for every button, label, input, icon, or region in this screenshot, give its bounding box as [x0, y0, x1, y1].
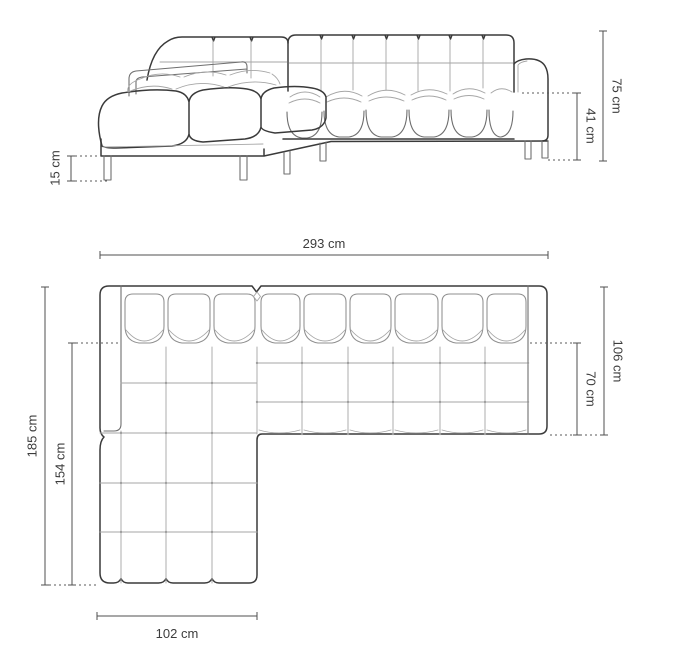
chaise-length-label: 154 cm — [52, 443, 67, 486]
total-width-label: 293 cm — [303, 236, 346, 251]
chaise-total-depth-label: 185 cm — [24, 415, 39, 458]
leg-height-line — [67, 156, 75, 181]
total-height-label: 75 cm — [610, 78, 625, 113]
dim-seat-height: 41 cm — [522, 93, 599, 160]
dim-chaise-total-depth: 185 cm — [24, 287, 49, 585]
chaise-width-label: 102 cm — [156, 626, 199, 641]
side-base — [101, 139, 548, 156]
seat-height-line — [573, 93, 581, 160]
side-view: 15 cm 41 cm 75 cm — [47, 31, 624, 186]
total-height-line — [599, 31, 607, 161]
sofa-dimension-diagram: 15 cm 41 cm 75 cm 293 cm — [0, 0, 673, 654]
side-backrest-tufting — [289, 40, 513, 91]
dim-total-depth: 106 cm — [600, 287, 626, 435]
dim-chaise-width: 102 cm — [97, 612, 257, 641]
dim-total-width: 293 cm — [100, 236, 548, 259]
side-legs — [104, 141, 548, 180]
top-grid-dots — [121, 363, 528, 532]
seat-depth-line — [573, 343, 581, 435]
side-seat-fronts — [287, 110, 513, 138]
chaise-length-line — [68, 343, 76, 585]
side-chaise-back-rows — [128, 70, 280, 92]
side-base-top — [103, 144, 263, 147]
total-depth-label: 106 cm — [611, 340, 626, 383]
total-width-line — [100, 251, 548, 259]
top-view: 293 cm 106 cm 70 cm 185 cm 154 cm 102 cm — [24, 236, 625, 641]
top-front-scallops — [259, 430, 526, 433]
total-depth-line — [600, 287, 608, 435]
top-outline — [100, 286, 547, 583]
seat-depth-label: 70 cm — [584, 371, 599, 406]
diagram-svg: 15 cm 41 cm 75 cm 293 cm — [0, 0, 673, 654]
top-seat-grid — [100, 347, 528, 583]
seat-height-label: 41 cm — [584, 108, 599, 143]
dim-seat-depth: 70 cm — [530, 343, 600, 435]
top-backrest-cushions — [125, 294, 526, 343]
dim-total-height: 75 cm — [599, 31, 625, 161]
leg-height-leaders — [75, 156, 110, 181]
dim-chaise-length: 154 cm — [49, 343, 120, 585]
side-seat-top-arcs — [289, 89, 512, 103]
chaise-width-line — [97, 612, 257, 620]
top-backrest-bulge-arcs — [126, 292, 525, 341]
chaise-total-depth-line — [41, 287, 49, 585]
side-right-armrest-inner — [518, 61, 527, 92]
side-backrest-left-outline — [147, 37, 288, 80]
side-right-armrest — [514, 59, 548, 141]
leg-height-label: 15 cm — [47, 150, 62, 185]
